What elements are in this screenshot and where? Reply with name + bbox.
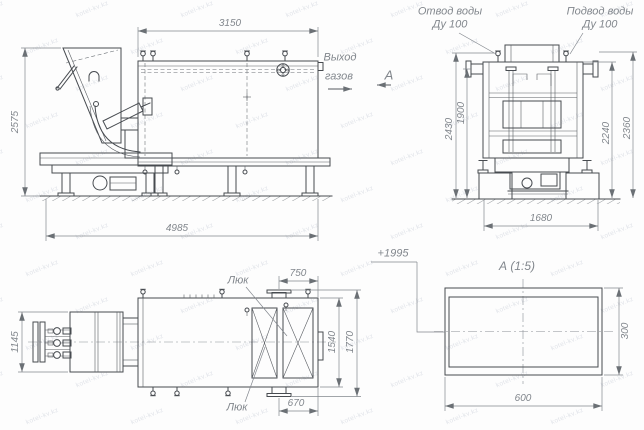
gas-outlet-label-line2: газов	[325, 72, 353, 83]
tank-plan	[138, 289, 323, 396]
dim-outer-left: 2430	[445, 118, 455, 140]
water-outlet-leader	[459, 33, 496, 54]
technical-drawing-canvas: kotel-kv.kzkotel-kv.kzkotel-kv.kzkotel-k…	[0, 0, 644, 430]
detail-flange-inner	[449, 297, 598, 367]
tank-side	[138, 51, 330, 196]
plan-view-linework	[18, 276, 361, 416]
hatch-rect-2	[283, 308, 313, 378]
dim-feeder-width: 1145	[11, 331, 21, 353]
foundation-right	[566, 173, 599, 199]
dim-outer-right: 2360	[623, 117, 633, 139]
detail-a-title: А (1:5)	[499, 260, 535, 272]
pipe-stub-bottom	[272, 387, 286, 394]
valve-icons-top	[141, 51, 288, 61]
hydraulic-cylinder	[103, 103, 143, 129]
dim-height-left: 2575	[11, 111, 21, 133]
section-a-label: А	[385, 69, 394, 82]
dim-inner-left: 1900	[457, 102, 467, 124]
dim-detail-height: 300	[621, 323, 631, 340]
water-inlet-label-line2: Ду 100	[583, 20, 618, 31]
boiler-end	[466, 45, 598, 194]
valve-icons-plan	[141, 289, 310, 395]
detail-a-dimensions	[371, 262, 623, 411]
dim-detail-width: 600	[515, 394, 532, 404]
dim-top-stub: 750	[290, 269, 307, 279]
elevation-leader	[417, 262, 445, 332]
flange-icon	[277, 64, 289, 76]
handle-icon	[89, 72, 99, 82]
motor-icon	[522, 178, 532, 188]
foundation-left	[479, 173, 512, 199]
water-outlet-label-line1: Отвод воды	[418, 7, 482, 18]
water-outlet-label-line2: Ду 100	[433, 20, 468, 31]
gas-outlet-label-line1: Выход	[323, 53, 356, 64]
hatch-rect-1	[252, 308, 277, 378]
dim-body-width: 1540	[328, 331, 338, 353]
water-flange-right	[583, 61, 598, 77]
valve-icons-top	[496, 51, 569, 62]
motor-icon	[93, 176, 107, 190]
dim-overall-width: 1770	[346, 331, 356, 353]
detail-a-linework	[371, 262, 623, 411]
dim-tank-length-top: 3150	[219, 19, 241, 29]
water-inlet-label-line1: Подвод воды	[567, 7, 634, 18]
hopper	[63, 48, 121, 143]
hatch-leader-bottom	[245, 347, 265, 402]
hatch-label-top: Люк	[227, 276, 248, 287]
feeder-arc	[95, 106, 140, 152]
dim-bottom-stub: 670	[288, 399, 305, 409]
feeder-side	[40, 48, 172, 196]
dim-foundation-span: 1680	[530, 214, 552, 224]
water-inlet-leader	[570, 33, 583, 54]
dim-overall-length: 4985	[166, 224, 188, 234]
hatch-label-bottom: Люк	[226, 403, 247, 414]
elevation-mark: +1995	[378, 249, 409, 260]
dim-inner-right: 2240	[602, 122, 612, 144]
